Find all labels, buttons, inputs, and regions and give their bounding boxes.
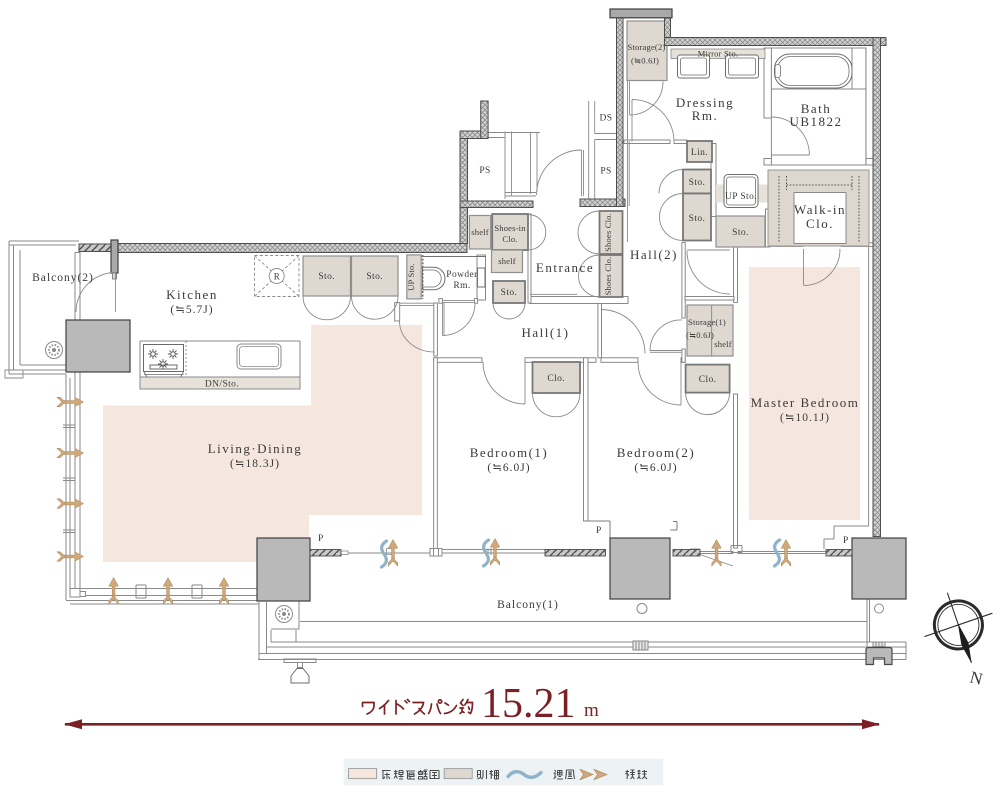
- svg-text:Storage(2): Storage(2): [628, 42, 666, 52]
- svg-text:Rm.: Rm.: [692, 108, 719, 123]
- svg-text:(≒10.1J): (≒10.1J): [780, 412, 830, 424]
- svg-text:Clo.: Clo.: [547, 374, 565, 384]
- svg-text:DN/Sto.: DN/Sto.: [205, 380, 239, 390]
- svg-text:P: P: [318, 534, 324, 544]
- svg-text:UB1822: UB1822: [789, 114, 842, 129]
- svg-text:Shoes Clo.: Shoes Clo.: [603, 257, 613, 296]
- svg-text:Sto.: Sto.: [732, 228, 749, 238]
- svg-text:Mirror Sto.: Mirror Sto.: [698, 49, 738, 59]
- svg-text:shelf: shelf: [471, 227, 489, 237]
- svg-text:Sto.: Sto.: [366, 272, 383, 282]
- svg-text:(≒6.0J): (≒6.0J): [487, 462, 530, 474]
- svg-text:Balcony(1): Balcony(1): [497, 599, 559, 611]
- svg-text:P: P: [596, 526, 602, 536]
- svg-text:Clo.: Clo.: [502, 234, 517, 244]
- svg-text:Sto.: Sto.: [689, 214, 706, 224]
- svg-text:Lin.: Lin.: [691, 148, 708, 158]
- svg-text:Living·Dining: Living·Dining: [208, 441, 303, 456]
- svg-text:(≒0.6J): (≒0.6J): [631, 56, 659, 66]
- svg-text:P: P: [843, 536, 849, 546]
- svg-text:Kitchen: Kitchen: [166, 287, 218, 302]
- svg-text:Powder: Powder: [446, 270, 478, 280]
- svg-text:Bedroom(1): Bedroom(1): [470, 445, 549, 460]
- svg-text:shelf: shelf: [714, 339, 732, 349]
- svg-text:PS: PS: [479, 166, 490, 176]
- svg-text:(≒0.6J): (≒0.6J): [686, 330, 714, 340]
- svg-text:Clo.: Clo.: [699, 375, 717, 385]
- svg-text:DS: DS: [600, 114, 613, 124]
- svg-text:Shoes Clo.: Shoes Clo.: [603, 213, 613, 252]
- svg-text:(≒5.7J): (≒5.7J): [170, 304, 213, 316]
- svg-text:m: m: [584, 700, 599, 721]
- svg-text:15.21: 15.21: [481, 681, 576, 727]
- svg-text:Walk-in: Walk-in: [794, 202, 846, 217]
- svg-text:PS: PS: [600, 167, 611, 177]
- svg-text:Sto.: Sto.: [501, 288, 518, 298]
- svg-text:Master Bedroom: Master Bedroom: [751, 395, 860, 410]
- svg-text:(≒18.3J): (≒18.3J): [230, 458, 280, 470]
- svg-text:UP Sto.: UP Sto.: [406, 263, 416, 291]
- svg-text:Clo.: Clo.: [806, 216, 834, 231]
- svg-text:Bedroom(2): Bedroom(2): [617, 445, 696, 460]
- svg-text:Sto.: Sto.: [318, 272, 335, 282]
- svg-text:Balcony(2): Balcony(2): [32, 272, 94, 284]
- svg-text:Entrance: Entrance: [536, 260, 594, 275]
- svg-text:Hall(1): Hall(1): [521, 325, 569, 340]
- svg-text:shelf: shelf: [498, 256, 516, 266]
- svg-text:Shoes-in: Shoes-in: [494, 223, 526, 233]
- svg-text:(≒6.0J): (≒6.0J): [634, 462, 677, 474]
- svg-text:UP Sto.: UP Sto.: [725, 192, 757, 202]
- svg-text:R: R: [274, 272, 280, 282]
- svg-text:Storage(1): Storage(1): [688, 317, 726, 327]
- svg-text:Rm.: Rm.: [453, 281, 470, 291]
- svg-text:Sto.: Sto.: [689, 178, 706, 188]
- svg-text:Hall(2): Hall(2): [630, 247, 678, 262]
